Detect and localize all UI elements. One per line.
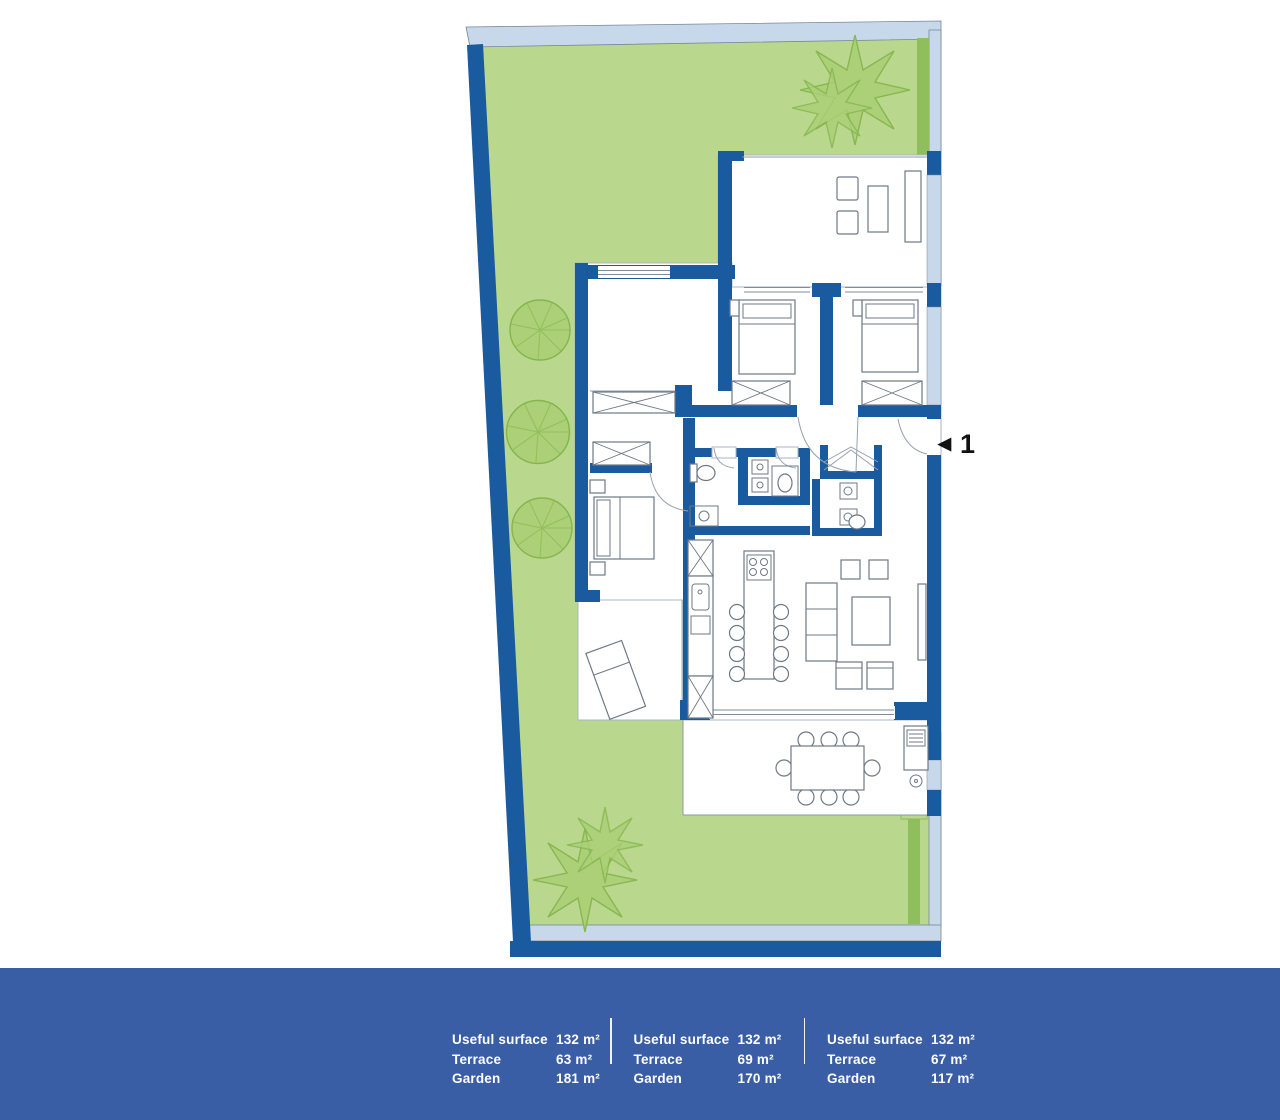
stat-value: 63 m² [556,1052,610,1068]
stat-label: Terrace [452,1052,556,1068]
stat-label: Useful surface [634,1032,738,1048]
unit-marker: ◀ 1 [937,429,975,459]
unit-stats: Useful surface 132 m² Terrace 63 m² Gard… [452,1032,997,1087]
bed [730,300,795,374]
hedge-bottom-right [908,816,920,924]
unit-stats-column-2: Useful surface 132 m² Terrace 69 m² Gard… [634,1032,804,1087]
stat-value: 170 m² [738,1071,804,1087]
stat-value: 181 m² [556,1071,610,1087]
unit-stats-column-1: Useful surface 132 m² Terrace 63 m² Gard… [452,1032,610,1087]
coffee-table [852,597,890,645]
stat-label: Terrace [827,1052,931,1068]
marker-arrow-icon: ◀ [937,434,952,453]
stat-value: 132 m² [931,1032,997,1048]
column-divider [610,1018,612,1064]
floor-plan: ◀ 1 [0,0,1280,960]
round-tree [507,401,570,464]
bottom-path-strip [514,925,941,941]
column-divider [804,1018,806,1064]
stat-value: 132 m² [738,1032,804,1048]
hedge-top-right [917,38,929,156]
round-tree [510,300,570,360]
bed [853,300,918,372]
round-tree [512,498,572,558]
stat-label: Useful surface [827,1032,931,1048]
stat-label: Useful surface [452,1032,556,1048]
stat-label: Garden [827,1071,931,1087]
unit-number: 1 [960,429,975,459]
stat-value: 69 m² [738,1052,804,1068]
unit-stats-column-3: Useful surface 132 m² Terrace 67 m² Gard… [827,1032,997,1087]
stat-value: 117 m² [931,1071,997,1087]
stat-label: Terrace [634,1052,738,1068]
stat-value: 132 m² [556,1032,610,1048]
kitchen-island [744,551,774,679]
page: ◀ 1 Useful surface 132 m² Terrace 63 m² … [0,0,1280,1120]
sofa [806,583,837,661]
upper-terrace-floor [718,155,929,287]
stat-label: Garden [634,1071,738,1087]
stat-value: 67 m² [931,1052,997,1068]
footer-bar: Useful surface 132 m² Terrace 63 m² Gard… [0,968,1280,1120]
bottom-boundary-wall [510,941,941,957]
tv-bench [918,584,926,660]
stat-label: Garden [452,1071,556,1087]
